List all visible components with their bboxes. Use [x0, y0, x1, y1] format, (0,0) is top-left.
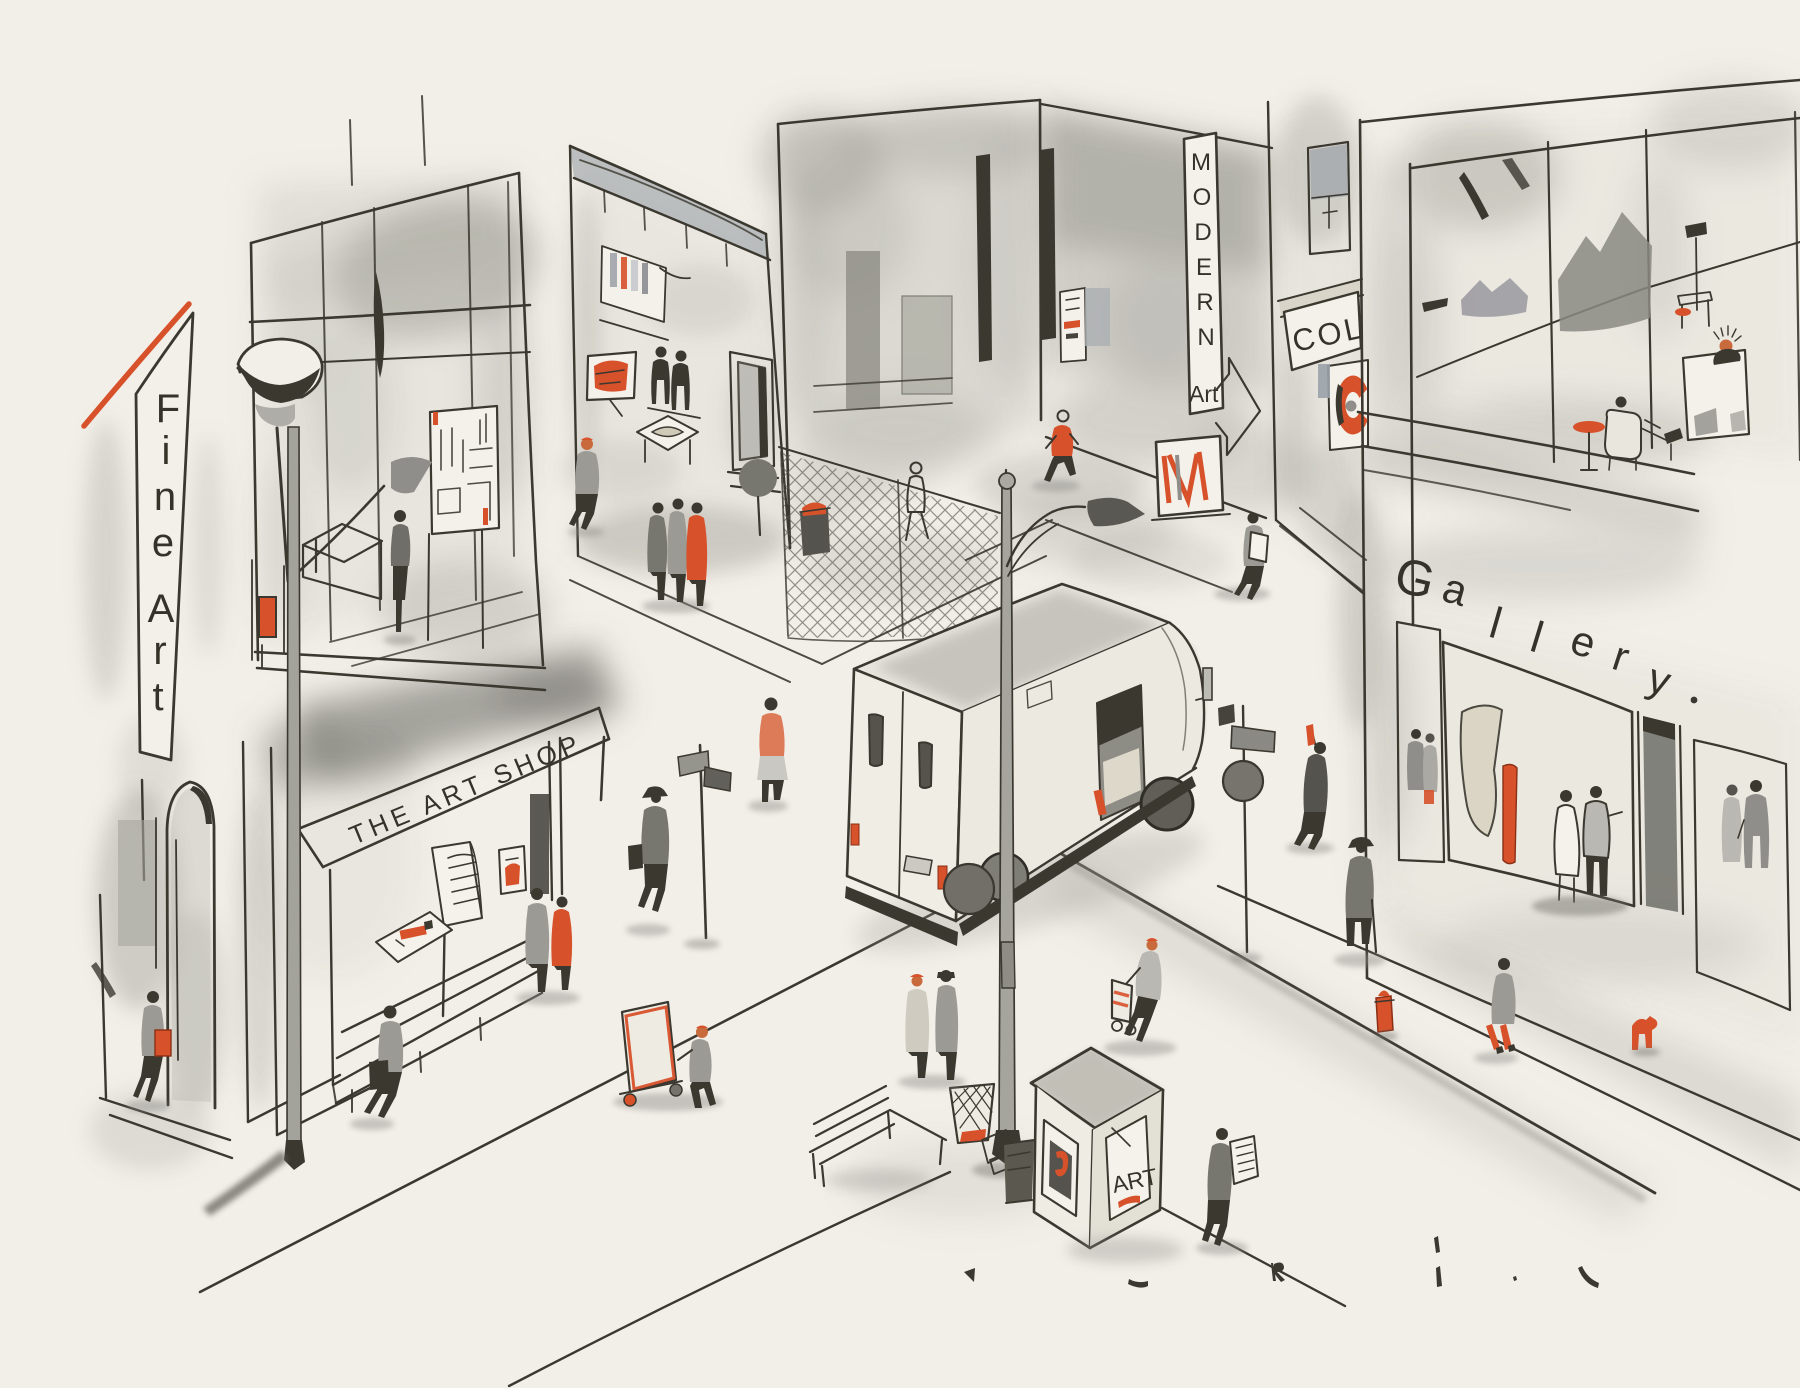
svg-text:M: M — [1191, 149, 1211, 176]
svg-text:O: O — [1193, 184, 1212, 211]
svg-text:R: R — [1196, 289, 1213, 316]
svg-text:n: n — [154, 475, 176, 519]
svg-text:E: E — [1196, 254, 1212, 281]
svg-text:A: A — [148, 587, 175, 631]
svg-text:D: D — [1194, 219, 1211, 246]
svg-text:F: F — [156, 387, 180, 431]
svg-text:r: r — [153, 629, 166, 673]
svg-text:e: e — [152, 521, 174, 565]
svg-text:t: t — [152, 675, 163, 719]
svg-text:i: i — [162, 429, 171, 473]
svg-text:N: N — [1197, 324, 1214, 351]
svg-text:Art: Art — [1189, 381, 1219, 407]
